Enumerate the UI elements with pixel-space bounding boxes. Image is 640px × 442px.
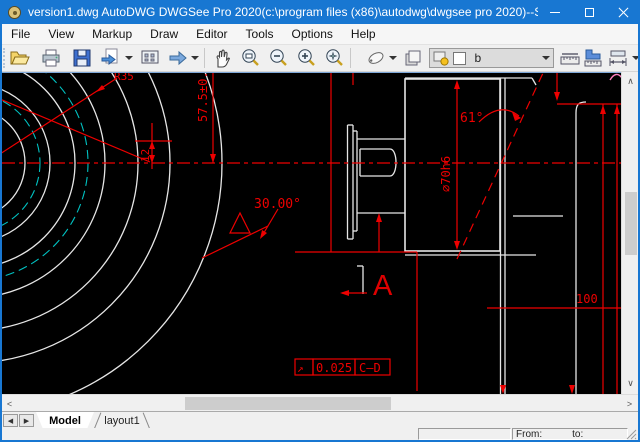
- app-window: version1.dwg AutoDWG DWGSee Pro 2020(c:\…: [0, 0, 640, 442]
- layer-color-swatch: [453, 52, 466, 65]
- thumbnail-view-button[interactable]: [139, 46, 162, 70]
- vertical-scroll-thumb[interactable]: [625, 192, 637, 255]
- horizontal-scroll-thumb[interactable]: [185, 397, 391, 410]
- resize-grip-icon[interactable]: [626, 429, 637, 440]
- window-title: version1.dwg AutoDWG DWGSee Pro 2020(c:\…: [28, 5, 538, 19]
- horizontal-scrollbar[interactable]: < >: [2, 394, 638, 411]
- close-button[interactable]: [606, 0, 640, 24]
- tab-model[interactable]: Model: [36, 412, 94, 429]
- scroll-left-button[interactable]: <: [2, 396, 17, 411]
- scroll-down-button[interactable]: ∨: [623, 376, 638, 391]
- section-letter: A: [373, 270, 393, 302]
- menu-tools[interactable]: Tools: [237, 25, 283, 43]
- status-panel-range: From: to:: [512, 428, 628, 440]
- zoom-extents-icon: [323, 47, 345, 69]
- measure-length-icon: [559, 47, 581, 69]
- measure-dimension-icon: [607, 47, 629, 69]
- layers-icon: [402, 47, 424, 69]
- forward-arrow-icon: [167, 47, 189, 69]
- zoom-out-button[interactable]: [267, 46, 290, 70]
- save-button[interactable]: [70, 46, 93, 70]
- cad-drawing: R35 57.5±0.2 12 30.00° 61° ⌀70h6 100 A ↗…: [2, 73, 621, 395]
- zoom-window-button[interactable]: [238, 46, 261, 70]
- scroll-right-button[interactable]: >: [622, 396, 637, 411]
- app-icon: [8, 6, 21, 19]
- layer-combobox[interactable]: b: [429, 48, 555, 68]
- drawing-viewport[interactable]: R35 57.5±0.2 12 30.00° 61° ⌀70h6 100 A ↗…: [2, 72, 621, 394]
- zoom-in-icon: [295, 47, 317, 69]
- fcf-tolerance: 0.025: [316, 361, 352, 375]
- layer-combobox-dropdown[interactable]: [537, 49, 553, 67]
- dimension-lines: [2, 73, 621, 395]
- toolbar-separator: [204, 48, 205, 68]
- angle61-label: 61°: [460, 111, 483, 126]
- length100-label: 100: [576, 292, 598, 306]
- menu-markup[interactable]: Markup: [83, 25, 141, 43]
- markup-pen-button[interactable]: [364, 46, 387, 70]
- menu-help[interactable]: Help: [342, 25, 385, 43]
- forward-button[interactable]: [166, 46, 189, 70]
- measure-area-icon: [582, 47, 604, 69]
- layers-button[interactable]: [401, 46, 424, 70]
- menu-editor[interactable]: Editor: [187, 25, 236, 43]
- print-button[interactable]: [39, 46, 62, 70]
- pan-button[interactable]: [210, 46, 233, 70]
- scroll-up-button[interactable]: ∧: [623, 74, 638, 89]
- zoom-out-icon: [267, 47, 289, 69]
- fcf-datum: C–D: [359, 361, 381, 375]
- tab-prev-button[interactable]: ◀: [3, 414, 18, 427]
- minimize-icon: [550, 12, 560, 13]
- zoom-extents-button[interactable]: [322, 46, 345, 70]
- offset-dim-label: 12: [139, 149, 152, 162]
- maximize-icon: [585, 8, 594, 17]
- tab-layout1-label: layout1: [104, 415, 139, 427]
- convert-dropdown-icon[interactable]: [125, 56, 133, 60]
- status-bar: From: to:: [2, 428, 638, 440]
- menu-options[interactable]: Options: [283, 25, 342, 43]
- angle30-label: 30.00°: [254, 197, 301, 212]
- layer-state-icon: [432, 49, 450, 67]
- markup-pen-icon: [365, 47, 387, 69]
- tab-slant-divider: [94, 412, 102, 429]
- markup-dropdown-icon[interactable]: [389, 56, 397, 60]
- radius-label: R35: [114, 73, 134, 83]
- measure-length-button[interactable]: [558, 46, 581, 70]
- measure-dimension-button[interactable]: [607, 46, 630, 70]
- layer-combobox-value: b: [475, 51, 538, 65]
- tab-slant-divider: [143, 412, 151, 429]
- status-to-label: to:: [572, 429, 583, 440]
- save-floppy-icon: [71, 47, 93, 69]
- pan-hand-icon: [211, 47, 233, 69]
- dropdown-arrow-icon: [542, 56, 550, 60]
- window-border-left: [0, 24, 2, 442]
- minimize-button[interactable]: [538, 0, 572, 24]
- vertical-scrollbar[interactable]: ∧ ∨: [621, 72, 638, 394]
- dimension-labels: R35 57.5±0.2 12 30.00° 61° ⌀70h6 100 A ↗…: [114, 73, 598, 375]
- close-icon: [618, 7, 629, 18]
- zoom-in-button[interactable]: [295, 46, 318, 70]
- fcf-runout-symbol: ↗: [297, 362, 304, 375]
- geometry-arcs: [2, 73, 222, 395]
- convert-file-icon: [100, 47, 122, 69]
- layout-tab-bar: ◀ ▶ Model layout1: [2, 411, 638, 428]
- forward-dropdown-icon[interactable]: [191, 56, 199, 60]
- toolbar-grip[interactable]: [3, 48, 6, 68]
- status-from-label: From:: [516, 429, 542, 440]
- tab-next-button[interactable]: ▶: [19, 414, 34, 427]
- menu-draw[interactable]: Draw: [141, 25, 187, 43]
- diameter-label: ⌀70h6: [439, 156, 453, 192]
- printer-icon: [40, 47, 62, 69]
- tab-layout1[interactable]: layout1: [94, 412, 150, 429]
- thumbnail-view-icon: [139, 47, 161, 69]
- open-folder-icon: [9, 47, 31, 69]
- title-bar: version1.dwg AutoDWG DWGSee Pro 2020(c:\…: [0, 0, 640, 24]
- toolbar: b: [0, 45, 640, 72]
- open-button[interactable]: [8, 46, 31, 70]
- zoom-window-icon: [239, 47, 261, 69]
- height-dim-label: 57.5±0.2: [196, 73, 210, 122]
- menu-view[interactable]: View: [39, 25, 83, 43]
- menu-bar: File View Markup Draw Editor Tools Optio…: [0, 24, 640, 45]
- status-panel-empty: [418, 428, 511, 440]
- maximize-button[interactable]: [572, 0, 606, 24]
- menu-file[interactable]: File: [2, 25, 39, 43]
- toolbar-separator: [350, 48, 351, 68]
- measure-area-button[interactable]: [582, 46, 605, 70]
- convert-button[interactable]: [100, 46, 123, 70]
